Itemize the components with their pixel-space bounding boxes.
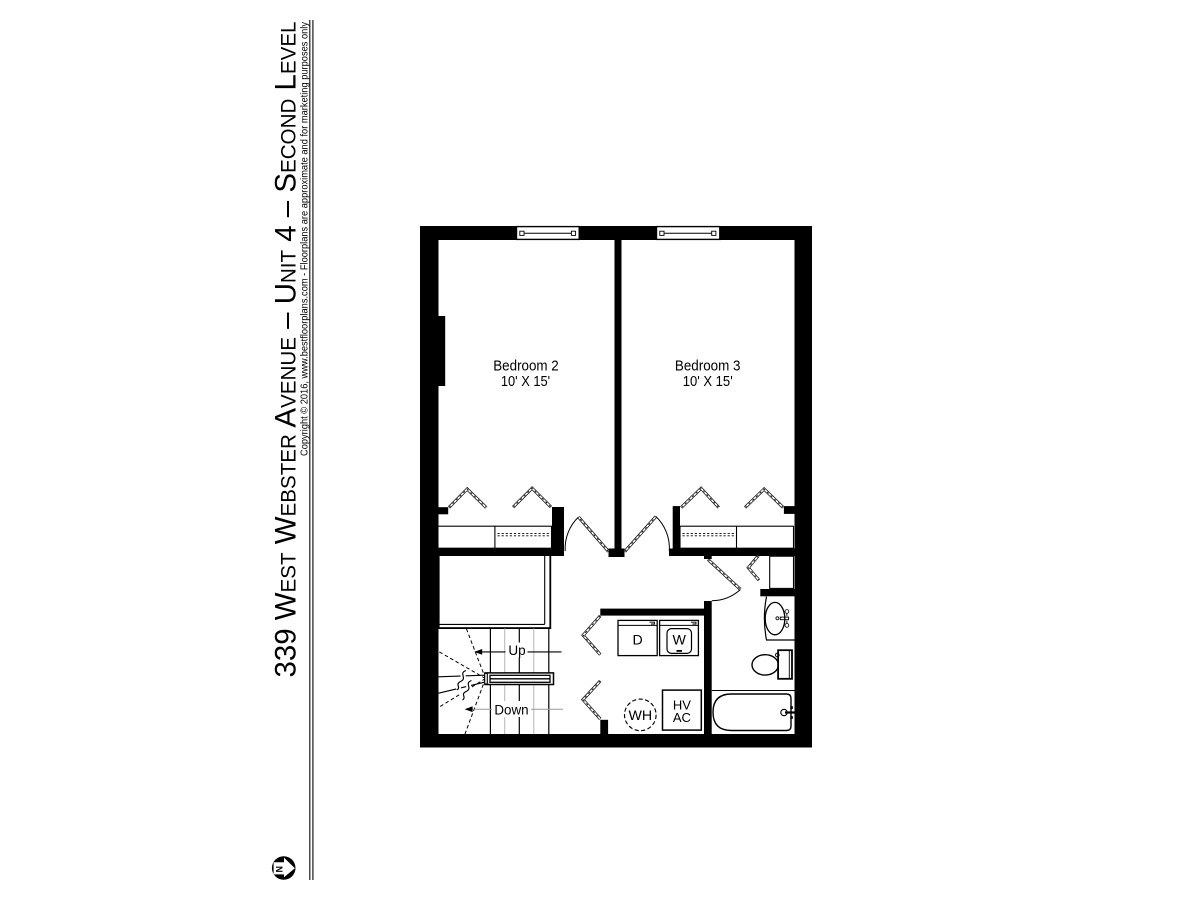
svg-text:Up: Up xyxy=(508,642,525,658)
svg-text:10' X 15': 10' X 15' xyxy=(683,374,733,390)
svg-text:AC: AC xyxy=(673,710,691,725)
svg-text:10' X 15': 10' X 15' xyxy=(501,374,551,390)
svg-text:Down: Down xyxy=(494,702,528,718)
svg-text:W: W xyxy=(672,632,686,648)
svg-text:WH: WH xyxy=(628,708,652,724)
svg-text:N: N xyxy=(275,866,285,873)
svg-text:Bedroom 2: Bedroom 2 xyxy=(493,358,559,374)
svg-text:Copyright © 2016, www.bestflo: Copyright © 2016, www.bestfloorplans.com… xyxy=(300,22,311,456)
svg-text:Bedroom 3: Bedroom 3 xyxy=(675,358,741,374)
svg-text:D: D xyxy=(632,632,642,648)
svg-text:339 West Webster Avenue – Unit: 339 West Webster Avenue – Unit 4 – Secon… xyxy=(269,22,302,678)
